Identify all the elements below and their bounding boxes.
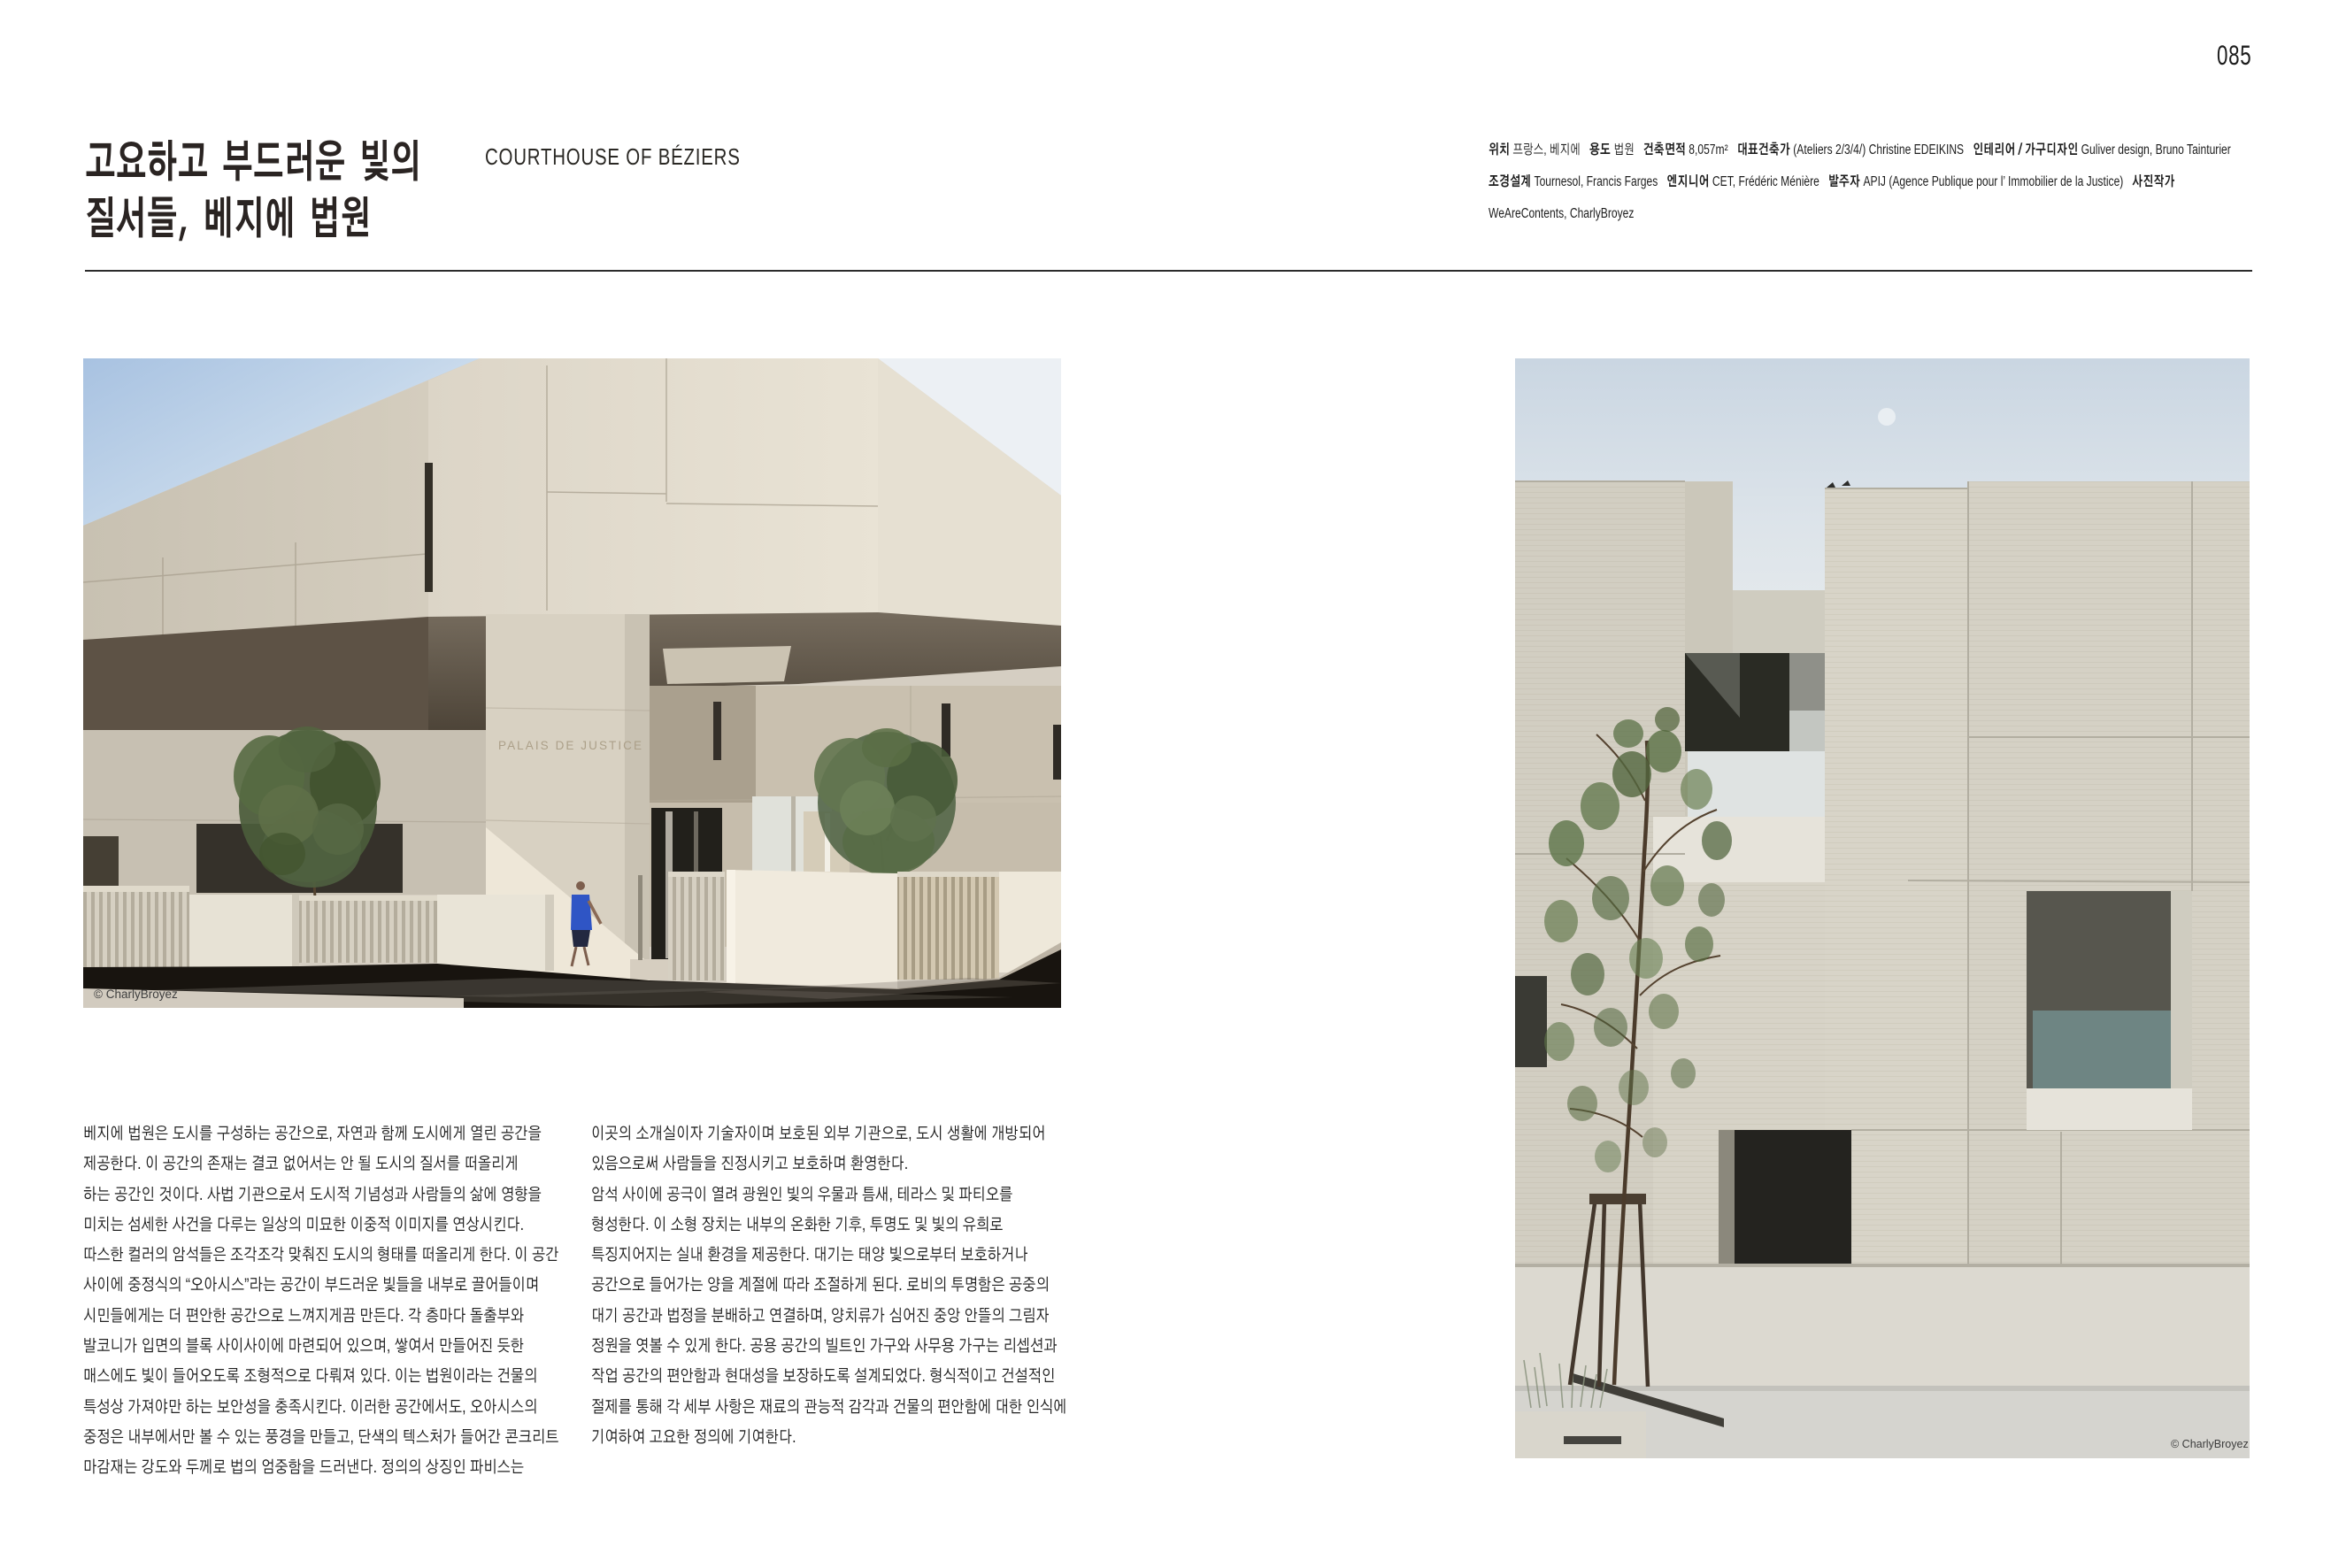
- svg-text:© CharlyBroyez: © CharlyBroyez: [2171, 1438, 2249, 1450]
- svg-text:PALAIS DE JUSTICE: PALAIS DE JUSTICE: [498, 739, 643, 752]
- svg-text:© CharlyBroyez: © CharlyBroyez: [94, 988, 178, 1001]
